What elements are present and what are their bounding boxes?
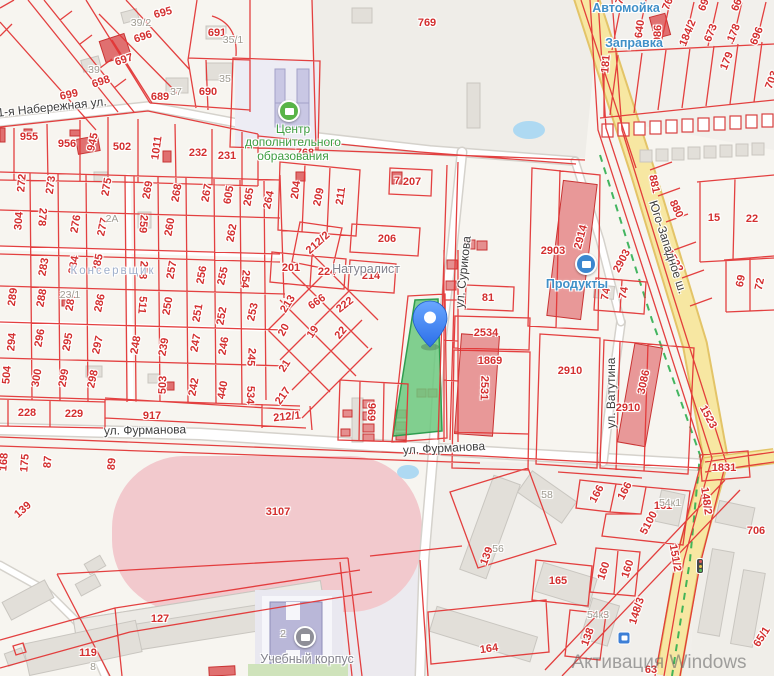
parcel-label-276[interactable]: 276: [68, 214, 83, 234]
parcel-label-502[interactable]: 502: [113, 141, 131, 153]
parcel-label-224[interactable]: 224: [318, 266, 336, 278]
poi-label-gray-учебный-корпус: Учебный корпус: [260, 652, 353, 666]
parcel-label-148-3[interactable]: 148/3: [627, 596, 647, 626]
parcel-label-955[interactable]: 955: [20, 131, 38, 143]
parcel-label-160[interactable]: 160: [619, 558, 636, 579]
parcel-label-3086[interactable]: 3086: [636, 369, 653, 395]
parcel-label-7[interactable]: 7: [394, 175, 400, 187]
building-label-2а: 2А: [106, 213, 119, 225]
parcel-label-239[interactable]: 239: [156, 337, 171, 357]
building-label-39-2: 39/2: [131, 17, 151, 29]
parcel-label-178[interactable]: 178: [725, 22, 743, 44]
parcel-label-255[interactable]: 255: [215, 266, 231, 286]
parcel-label-258[interactable]: 258: [136, 260, 150, 279]
parcel-label-286[interactable]: 286: [92, 293, 108, 313]
parcel-label-511[interactable]: 511: [135, 296, 149, 315]
parcel-label-3107[interactable]: 3107: [266, 506, 290, 518]
building-label-8: 8: [90, 661, 96, 673]
parcel-label-945[interactable]: 945: [85, 132, 101, 152]
parcel-label-287[interactable]: 287: [63, 292, 78, 312]
parcel-label-166[interactable]: 166: [587, 483, 606, 505]
parcel-label-19[interactable]: 19: [305, 324, 322, 341]
parcel-label-283[interactable]: 283: [36, 257, 51, 277]
street-label-ул-фурманова: ул. Фурманова: [403, 439, 486, 457]
parcel-label-673[interactable]: 673: [702, 22, 720, 44]
parcel-label-264[interactable]: 264: [261, 190, 277, 210]
parcel-label-222[interactable]: 222: [334, 295, 356, 316]
parcel-label-257[interactable]: 257: [164, 260, 179, 280]
parcel-label-232[interactable]: 232: [189, 147, 207, 159]
parcel-label-211[interactable]: 211: [334, 186, 348, 205]
parcel-label-138[interactable]: 138: [579, 626, 597, 647]
parcel-label-212-1[interactable]: 212/1: [273, 410, 302, 425]
parcel-label-699[interactable]: 699: [59, 87, 79, 103]
parcel-label-151-2[interactable]: 151/2: [667, 543, 684, 572]
school-icon[interactable]: [294, 626, 316, 648]
parcel-label-273[interactable]: 273: [44, 175, 58, 195]
parcel-label-201[interactable]: 201: [282, 262, 300, 274]
street-label-ул-ватутина: ул. Ватутина: [604, 358, 618, 429]
parcel-label-696[interactable]: 696: [132, 28, 153, 45]
parcel-label-242[interactable]: 242: [186, 377, 201, 397]
parcel-label-284[interactable]: 284: [66, 255, 81, 275]
poi-label-blue-заправка: Заправка: [605, 36, 663, 50]
parcel-label-81[interactable]: 81: [482, 292, 494, 304]
parcel-label-253[interactable]: 253: [245, 302, 261, 322]
parcel-label-212-2[interactable]: 212/2: [304, 229, 332, 256]
parcel-label-880[interactable]: 880: [667, 198, 686, 220]
parcel-label-440[interactable]: 440: [215, 380, 230, 400]
parcel-label-256[interactable]: 256: [194, 265, 209, 285]
parcel-label-74[interactable]: 74: [617, 286, 631, 300]
parcel-label-204[interactable]: 204: [289, 180, 303, 200]
parcel-label-278[interactable]: 278: [35, 207, 49, 226]
parcel-label-184-2[interactable]: 184/2: [677, 18, 698, 48]
building-label-54к1: 54к1: [659, 497, 681, 509]
parcel-label-65-1[interactable]: 65/1: [751, 625, 773, 650]
building-label-39: 39: [88, 64, 100, 76]
parcel-label-252[interactable]: 252: [214, 306, 229, 326]
parcel-label-689[interactable]: 689: [151, 91, 169, 103]
parcel-label-294[interactable]: 294: [5, 332, 19, 351]
parcel-label-164[interactable]: 164: [479, 642, 499, 656]
parcel-label-214[interactable]: 214: [362, 270, 380, 282]
parcel-label-269[interactable]: 269: [140, 180, 155, 200]
parcel-label-254[interactable]: 254: [238, 269, 252, 288]
parcel-label-89[interactable]: 89: [105, 457, 118, 470]
parcel-label-206[interactable]: 206: [378, 233, 396, 245]
parcel-label-248[interactable]: 248: [128, 335, 143, 355]
parcel-label-285[interactable]: 285: [90, 253, 106, 273]
poi-label-green-центр-дополнительного-образования: Центр дополнительного образования: [245, 123, 341, 163]
building-label-54к3: 54к3: [587, 609, 609, 621]
parcel-label-691[interactable]: 691: [208, 27, 226, 39]
parcel-label-217[interactable]: 217: [273, 385, 293, 407]
parcel-label-139[interactable]: 139: [478, 545, 496, 566]
parcel-label-296[interactable]: 296: [32, 328, 47, 348]
parcel-label-127[interactable]: 127: [151, 613, 169, 625]
parcel-label-768[interactable]: 768: [296, 147, 314, 159]
parcel-label-87[interactable]: 87: [41, 455, 54, 468]
parcel-label-272[interactable]: 272: [15, 173, 29, 192]
parcel-label-2903[interactable]: 2903: [541, 245, 565, 257]
building-label-2: 2: [280, 628, 286, 640]
parcel-label-698[interactable]: 698: [90, 73, 111, 90]
building-label-35-1: 35/1: [223, 34, 243, 46]
windows-activation-watermark-активация-windows: Активация Windows: [571, 652, 746, 674]
parcel-label-300[interactable]: 300: [29, 368, 44, 388]
parcel-label-267[interactable]: 267: [199, 183, 214, 203]
parcel-label-534[interactable]: 534: [244, 386, 257, 405]
poi-label-gray-натуралист: Натуралист: [332, 262, 400, 276]
parcel-label-166[interactable]: 166: [615, 480, 634, 502]
parcel-label-168[interactable]: 168: [0, 452, 11, 471]
parcel-label-881[interactable]: 881: [646, 174, 662, 194]
parcel-label-640[interactable]: 640: [633, 19, 647, 39]
education-center-icon[interactable]: [278, 100, 300, 122]
parcel-label-22[interactable]: 22: [746, 213, 758, 225]
parcel-label-69[interactable]: 69: [696, 0, 712, 13]
parcel-label-289[interactable]: 289: [6, 287, 20, 307]
parcel-label-21[interactable]: 21: [277, 358, 294, 375]
parcel-label-63[interactable]: 63: [645, 664, 657, 676]
parcel-label-605[interactable]: 605: [221, 185, 236, 205]
parcel-label-917[interactable]: 917: [143, 410, 161, 422]
parcel-label-986[interactable]: 986: [652, 25, 665, 44]
location-pin-icon[interactable]: [413, 301, 447, 351]
parcel-label-288[interactable]: 288: [34, 288, 49, 308]
parcel-label-228[interactable]: 228: [18, 407, 36, 419]
bus-stop-icon[interactable]: [618, 632, 631, 645]
parcel-label-231[interactable]: 231: [218, 150, 236, 162]
parcel-label-160[interactable]: 160: [595, 560, 612, 581]
parcel-label-213[interactable]: 213: [278, 293, 298, 315]
parcel-label-2903[interactable]: 2903: [611, 247, 633, 274]
poi-label-blue-продукты: Продукты: [546, 277, 608, 291]
building-label-35: 35: [219, 73, 231, 85]
parcel-label-20[interactable]: 20: [276, 322, 292, 338]
parcel-label-5100[interactable]: 5100: [638, 509, 660, 536]
parcel-label-207[interactable]: 207: [403, 176, 421, 188]
parcel-label-769[interactable]: 769: [418, 17, 436, 29]
parcel-label-250[interactable]: 250: [160, 296, 175, 316]
parcel-label-697[interactable]: 697: [113, 51, 134, 68]
parcel-label-245[interactable]: 245: [244, 347, 258, 366]
parcel-label-1869[interactable]: 1869: [478, 355, 502, 367]
grocery-icon[interactable]: [575, 253, 597, 275]
parcel-label-299[interactable]: 299: [56, 368, 71, 388]
parcel-label-148-2[interactable]: 148/2: [698, 487, 714, 516]
parcel-label-229[interactable]: 229: [65, 408, 83, 420]
building-label-23-1: 23/1: [60, 289, 80, 301]
parcel-label-259[interactable]: 259: [136, 214, 150, 233]
cadastral-map-canvas[interactable]: 6956966916976986996896909559569455021011…: [0, 0, 774, 676]
map-labels-layer: 6956966916976986996896909559569455021011…: [0, 0, 774, 676]
poi-label-blue-автомойка: Автомойка: [592, 1, 660, 15]
poi-label-lightblue-консервщик: Консервщик: [70, 265, 155, 277]
parcel-label-17[interactable]: 17: [611, 0, 627, 12]
parcel-label-304[interactable]: 304: [12, 211, 26, 230]
parcel-label-956[interactable]: 956: [58, 138, 76, 150]
parcel-label-247[interactable]: 247: [188, 333, 203, 353]
parcel-label-179[interactable]: 179: [718, 50, 736, 72]
parcel-label-969[interactable]: 969: [365, 403, 378, 422]
parcel-label-1831[interactable]: 1831: [712, 462, 736, 474]
parcel-label-696[interactable]: 696: [748, 25, 766, 47]
parcel-label-690[interactable]: 690: [199, 86, 217, 98]
parcel-label-666[interactable]: 666: [306, 292, 328, 312]
parcel-label-262[interactable]: 262: [224, 223, 239, 243]
parcel-label-298[interactable]: 298: [85, 369, 101, 389]
parcel-label-695[interactable]: 695: [153, 5, 174, 21]
parcel-label-2531[interactable]: 2531: [478, 376, 491, 401]
parcel-label-277[interactable]: 277: [95, 217, 111, 237]
parcel-label-265[interactable]: 265: [241, 187, 256, 207]
parcel-label-1011[interactable]: 1011: [149, 135, 164, 160]
parcel-label-703[interactable]: 703: [763, 69, 774, 91]
parcel-label-246[interactable]: 246: [216, 336, 231, 356]
parcel-label-2910[interactable]: 2910: [616, 402, 640, 414]
street-label-1-я-набережная-ул: 1-я Набережная ул.: [0, 94, 107, 119]
parcel-label-504[interactable]: 504: [0, 365, 14, 384]
parcel-label-119[interactable]: 119: [79, 647, 97, 659]
parcel-label-165[interactable]: 165: [549, 575, 567, 587]
parcel-label-74[interactable]: 74: [599, 287, 613, 301]
parcel-label-161[interactable]: 161: [654, 500, 672, 512]
parcel-label-2914[interactable]: 2914: [572, 224, 590, 251]
parcel-label-209[interactable]: 209: [311, 187, 327, 207]
parcel-label-1523[interactable]: 1523: [697, 403, 719, 430]
street-label-юго-западное-ш: Юго-Западное ш.: [646, 199, 689, 296]
parcel-label-2910[interactable]: 2910: [558, 365, 582, 377]
building-label-56: 56: [492, 543, 504, 555]
parcel-label-260[interactable]: 260: [162, 217, 177, 237]
parcel-label-69[interactable]: 69: [734, 274, 748, 288]
parcel-label-1522[interactable]: 1522: [663, 247, 686, 274]
parcel-label-251[interactable]: 251: [190, 303, 205, 323]
parcel-label-706[interactable]: 706: [747, 525, 765, 537]
parcel-label-22[interactable]: 22: [332, 324, 349, 341]
parcel-label-72[interactable]: 72: [753, 277, 767, 291]
building-label-58: 58: [541, 489, 553, 501]
parcel-label-503[interactable]: 503: [157, 376, 170, 395]
parcel-label-297[interactable]: 297: [90, 335, 106, 355]
street-label-ул-фурманова: ул. Фурманова: [104, 422, 186, 437]
parcel-label-139[interactable]: 139: [12, 499, 34, 520]
street-label-ул-сурикова: ул. Сурикова: [452, 235, 473, 308]
parcel-label-2534[interactable]: 2534: [474, 327, 498, 339]
traffic-light-icon[interactable]: [696, 558, 704, 574]
building-label-37: 37: [170, 86, 182, 98]
parcel-label-76[interactable]: 76: [660, 0, 676, 12]
parcel-label-295[interactable]: 295: [60, 332, 75, 352]
parcel-label-275[interactable]: 275: [99, 177, 114, 197]
parcel-label-268[interactable]: 268: [169, 183, 184, 203]
parcel-label-175[interactable]: 175: [18, 453, 32, 472]
parcel-label-15[interactable]: 15: [708, 212, 720, 224]
parcel-label-66[interactable]: 66: [729, 0, 745, 13]
parcel-label-181[interactable]: 181: [599, 54, 613, 73]
